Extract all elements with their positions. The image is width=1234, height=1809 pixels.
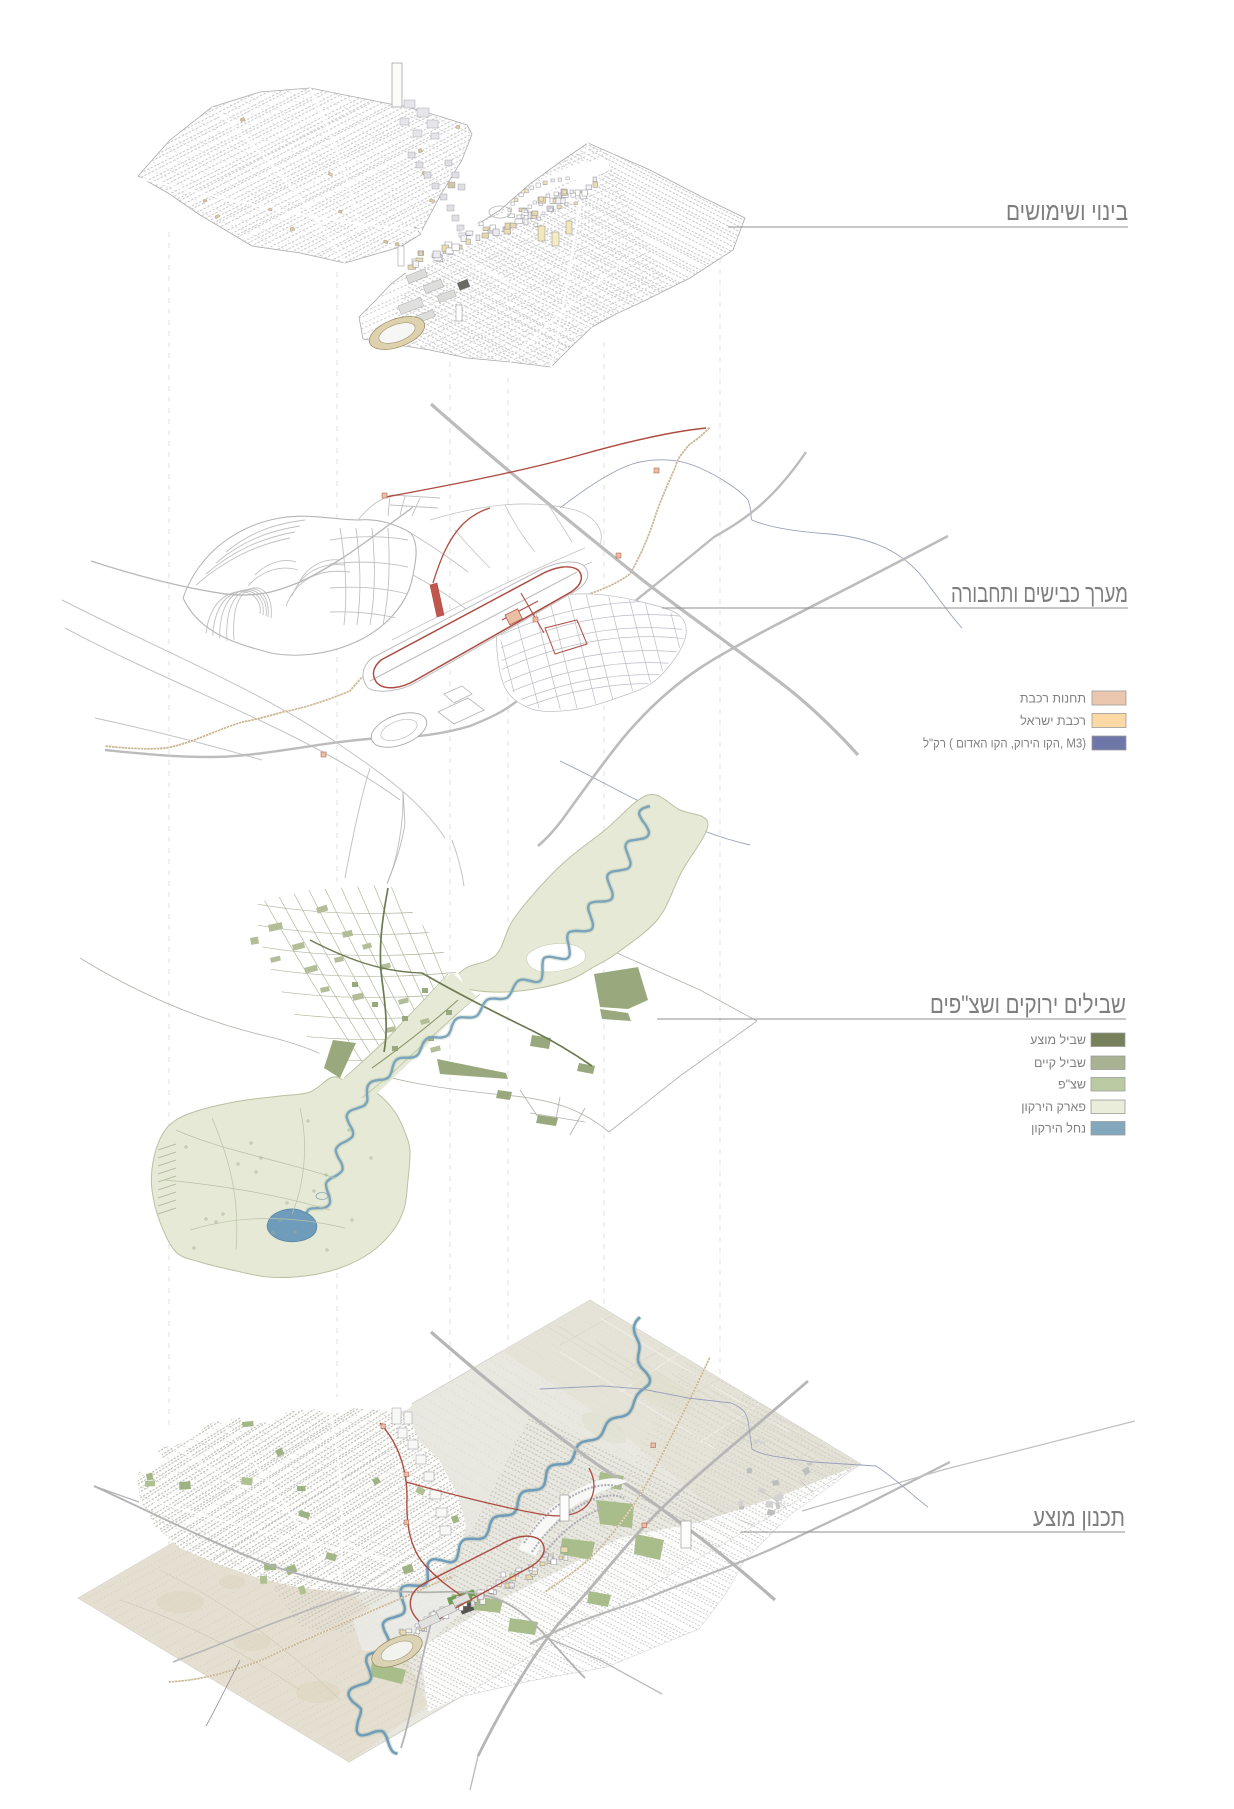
svg-text:שצ"פ: שצ"פ bbox=[1058, 1078, 1086, 1092]
svg-text:תחנות רכבת: תחנות רכבת bbox=[1020, 692, 1086, 706]
svg-text:רק"ל ( הקו הירוק, הקו האדום, M: רק"ל ( הקו הירוק, הקו האדום, M3) bbox=[923, 737, 1086, 751]
svg-text:שביל קיים: שביל קיים bbox=[1034, 1056, 1086, 1070]
svg-text:תכנון מוצע: תכנון מוצע bbox=[1033, 1504, 1125, 1532]
svg-text:רכבת ישראל: רכבת ישראל bbox=[1020, 714, 1086, 728]
svg-text:שבילים ירוקים ושצ"פים: שבילים ירוקים ושצ"פים bbox=[930, 991, 1126, 1019]
svg-text:מערך כבישים ותחבורה: מערך כבישים ותחבורה bbox=[951, 580, 1128, 608]
svg-text:בינוי ושימושים: בינוי ושימושים bbox=[1006, 198, 1128, 226]
svg-text:נחל הירקון: נחל הירקון bbox=[1031, 1122, 1086, 1136]
svg-text:שביל מוצע: שביל מוצע bbox=[1030, 1033, 1086, 1047]
svg-text:פארק הירקון: פארק הירקון bbox=[1021, 1100, 1086, 1114]
